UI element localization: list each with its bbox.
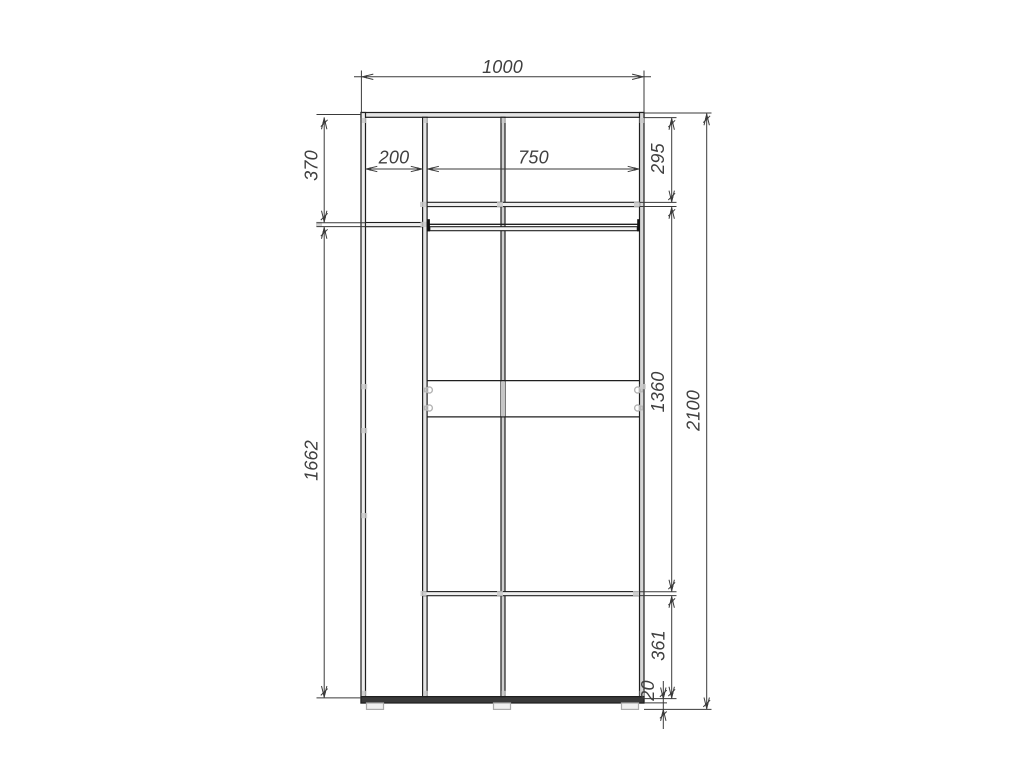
svg-text:2100: 2100 (684, 390, 704, 432)
svg-text:750: 750 (518, 148, 549, 168)
svg-text:361: 361 (649, 630, 669, 661)
svg-text:370: 370 (302, 150, 322, 181)
svg-text:200: 200 (378, 148, 410, 168)
svg-text:1360: 1360 (648, 372, 668, 413)
svg-text:20: 20 (638, 680, 658, 701)
svg-text:295: 295 (648, 142, 668, 174)
svg-text:1000: 1000 (482, 57, 523, 77)
svg-text:1662: 1662 (302, 440, 322, 481)
